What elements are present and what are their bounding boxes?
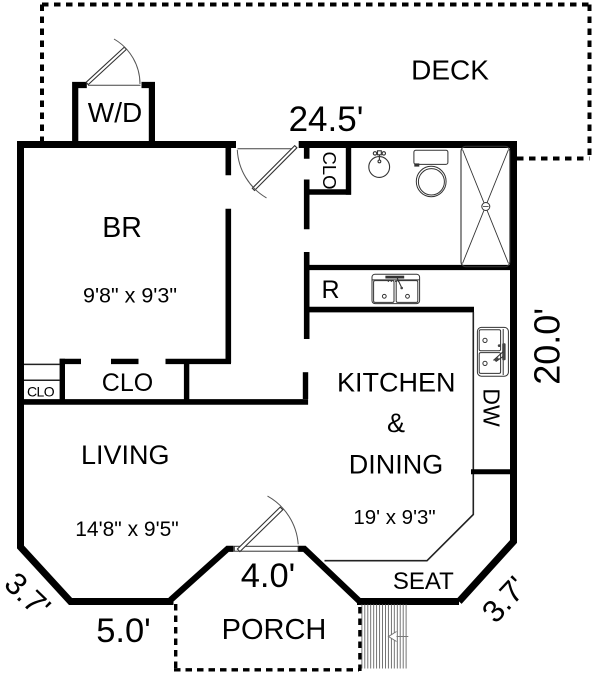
svg-text:CLO: CLO xyxy=(319,151,340,189)
svg-text:SEAT: SEAT xyxy=(393,568,454,595)
svg-text:24.5': 24.5' xyxy=(289,100,364,139)
svg-text:4.0': 4.0' xyxy=(241,557,296,595)
svg-text:&: & xyxy=(387,408,405,438)
svg-text:LIVING: LIVING xyxy=(81,440,170,470)
svg-text:CLO: CLO xyxy=(102,369,153,397)
svg-text:CLO: CLO xyxy=(27,384,55,400)
svg-text:DECK: DECK xyxy=(411,55,489,86)
svg-text:DINING: DINING xyxy=(349,450,444,480)
svg-text:KITCHEN: KITCHEN xyxy=(337,368,456,398)
svg-text:14'8" x 9'5": 14'8" x 9'5" xyxy=(75,518,179,541)
svg-text:5.0': 5.0' xyxy=(96,612,151,650)
svg-text:BR: BR xyxy=(102,212,142,244)
svg-text:19' x 9'3": 19' x 9'3" xyxy=(353,506,435,529)
svg-text:DW: DW xyxy=(478,388,504,427)
svg-text:W/D: W/D xyxy=(88,97,142,128)
svg-text:PORCH: PORCH xyxy=(222,614,327,646)
svg-text:20.0': 20.0' xyxy=(527,308,568,385)
svg-text:9'8" x 9'3": 9'8" x 9'3" xyxy=(83,284,177,308)
svg-text:R: R xyxy=(321,276,339,304)
